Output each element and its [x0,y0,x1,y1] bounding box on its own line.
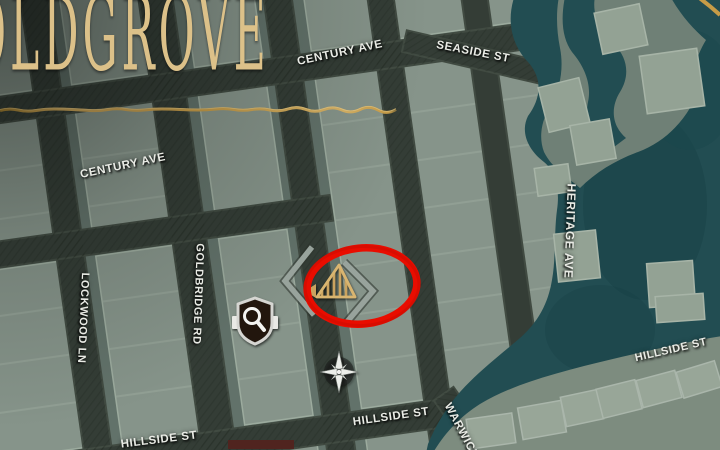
district-title: OLDGROVE [0,0,270,86]
game-map-screen: OLDGROVE CENTURY AVE SEASIDE ST CENTURY … [0,0,720,450]
